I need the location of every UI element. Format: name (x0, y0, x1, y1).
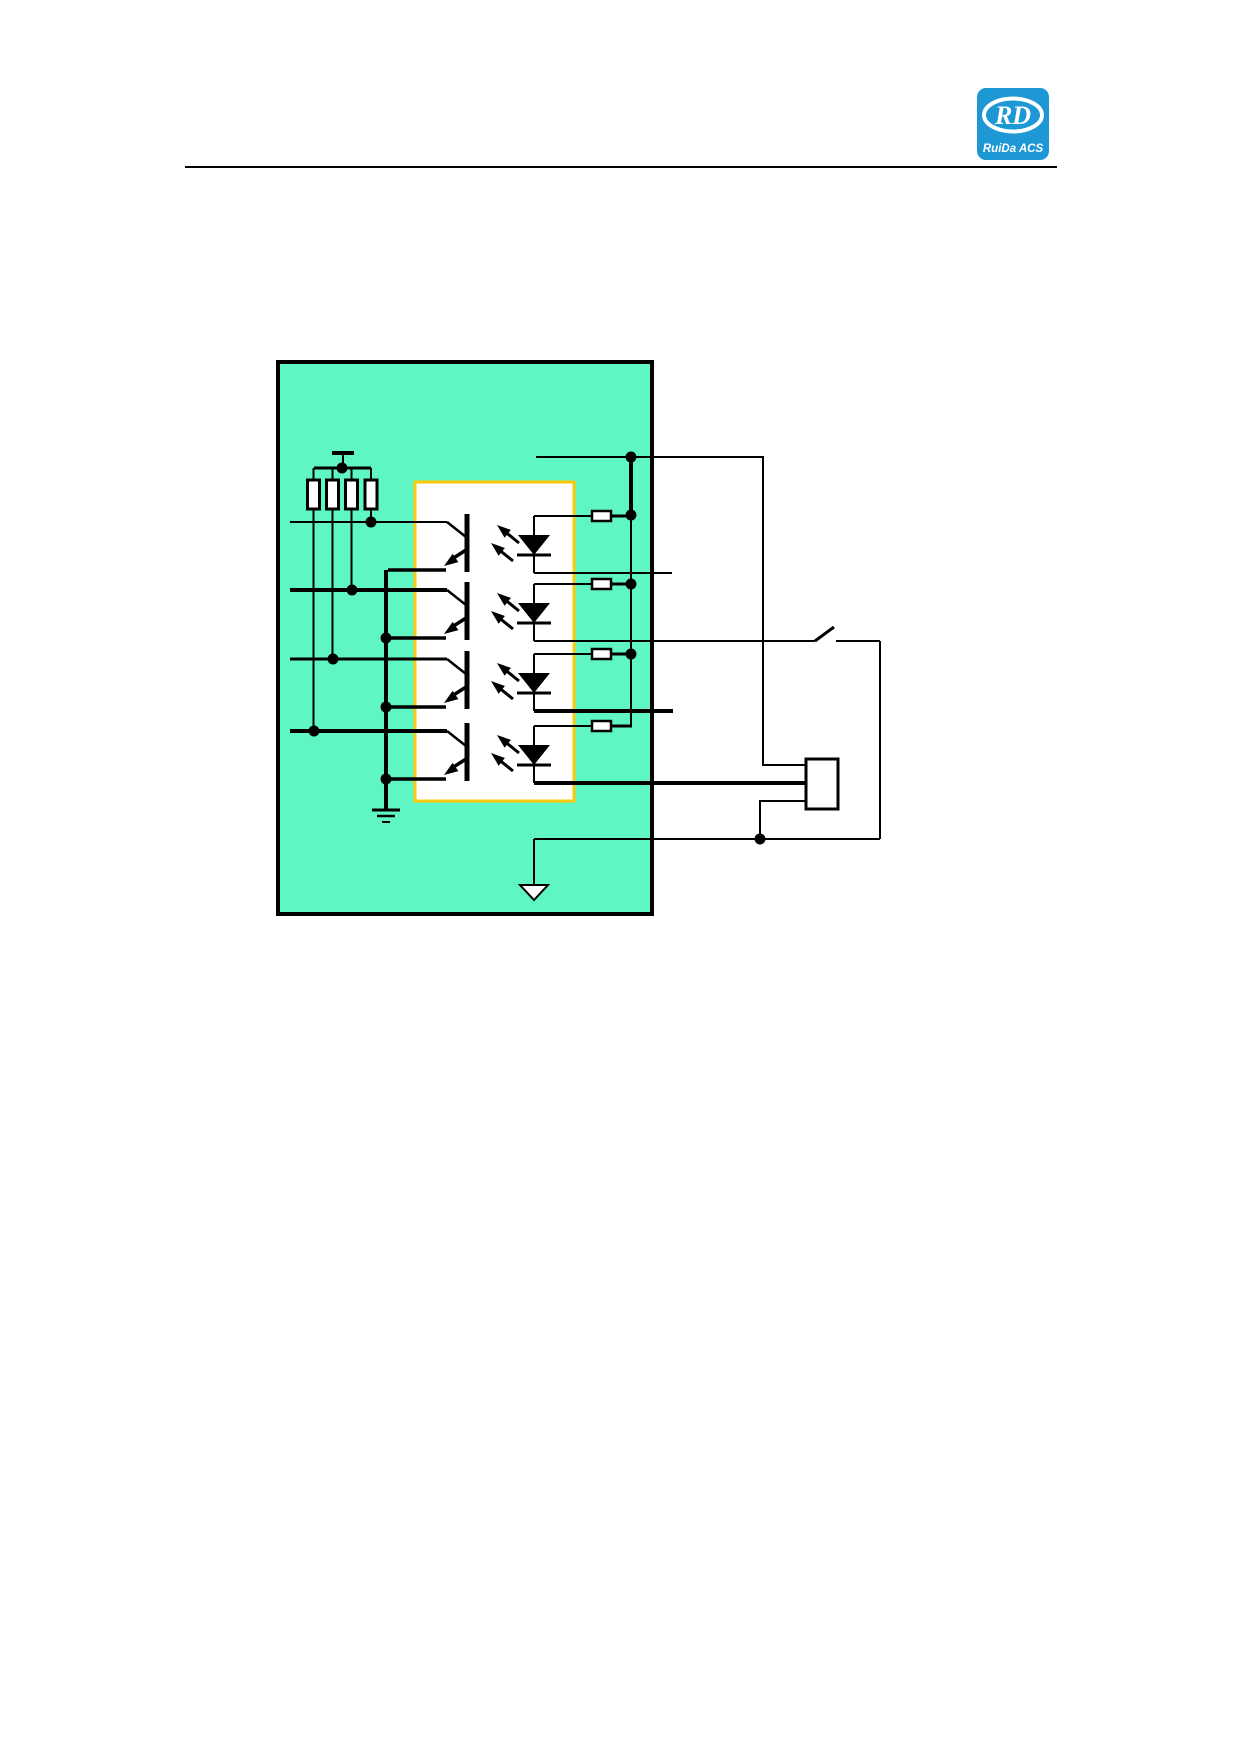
wiring-schematic (0, 0, 1240, 1754)
device-box (760, 759, 838, 839)
manual-page: RD RuiDa ACS (0, 0, 1240, 1754)
